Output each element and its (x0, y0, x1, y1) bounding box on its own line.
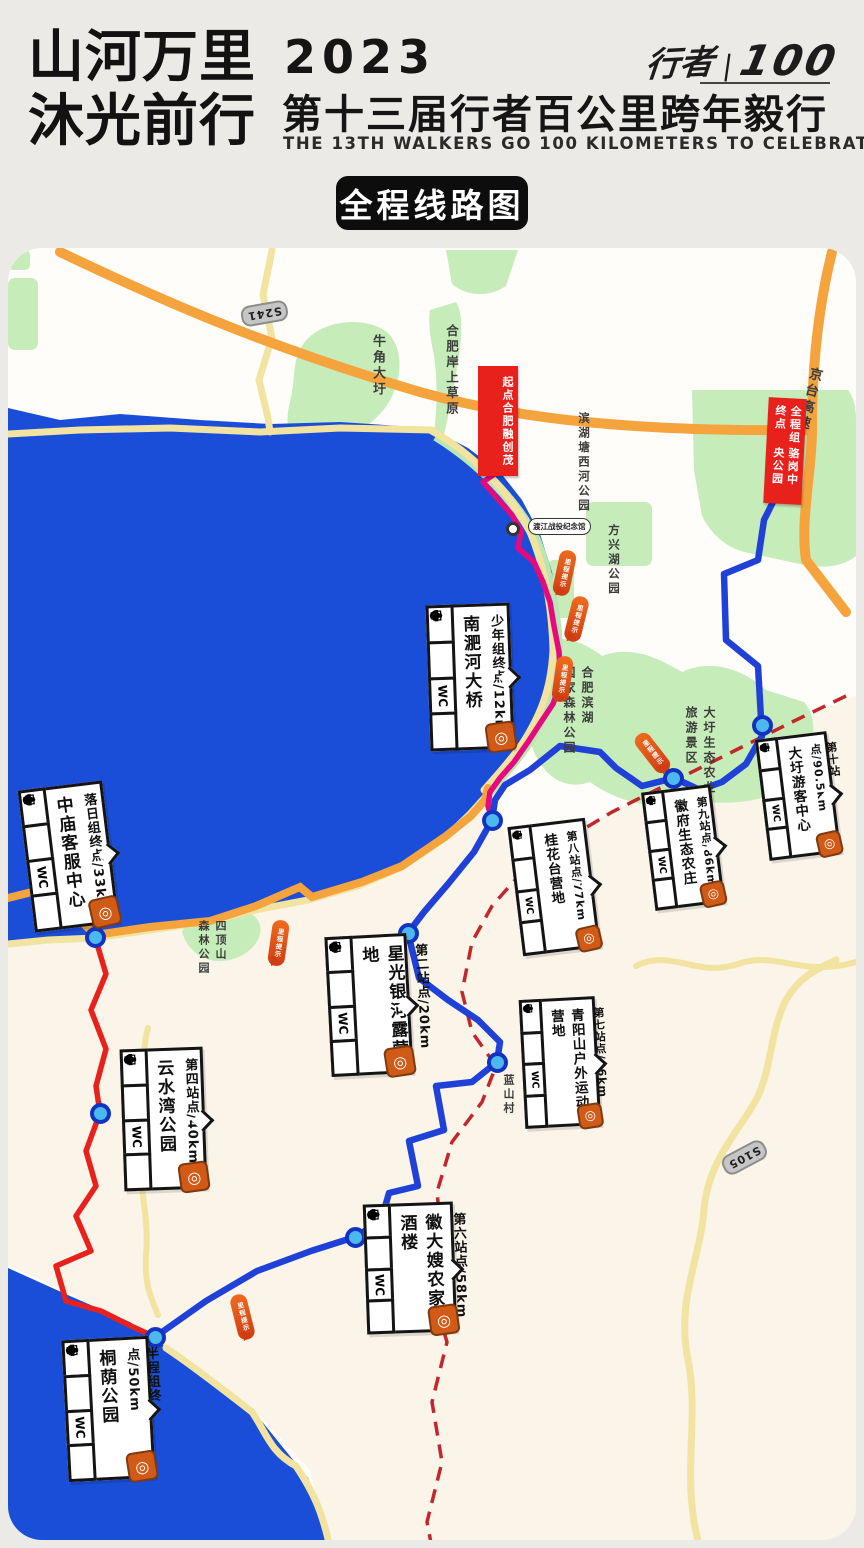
station-name: 南淝河大桥 (457, 615, 486, 740)
shuttle-bus-icon (366, 1299, 395, 1335)
event-year: 2023 (284, 30, 436, 84)
shuttle-bus-icon (67, 1443, 97, 1482)
event-subtitle: THE 13TH WALKERS GO 100 KILOMETERS TO CE… (283, 134, 864, 153)
logo-divider: | (721, 49, 735, 83)
shuttle-bus-icon (524, 1093, 549, 1129)
logo-text-left: 行者 (644, 34, 717, 86)
station-title: 少年组终点/12km (486, 614, 509, 739)
checkpoint-target-icon: ◎ (125, 1449, 159, 1483)
memorial-poi-dot (506, 522, 520, 536)
medical-cross-icon (326, 970, 356, 1009)
medical-cross-icon (63, 1374, 93, 1413)
label-niujiao-dawei: 牛角大圩 (368, 334, 387, 398)
route-node (487, 1052, 508, 1073)
checkpoint-target-icon: ◎ (383, 1044, 417, 1078)
station-callout-20km: WC 第二站点/20km 星光银河露营地 ◎ (324, 933, 413, 1077)
station-callout-90-5km: WC 第十站点/90.5km 大圩游客中心 ◎ (755, 731, 841, 861)
station-name: 云水湾公园 (151, 1059, 180, 1180)
checkpoint-target-icon: ◎ (177, 1160, 211, 1194)
medical-cross-icon (364, 1235, 393, 1271)
station-title: 第七站点/66km (590, 1007, 612, 1115)
medical-cross-icon (520, 1030, 545, 1066)
station-callout-86km: WC 第九站点/86km 徽府生态农庄 ◎ (641, 784, 725, 911)
toilet-wc-icon: WC (365, 1267, 394, 1303)
toilet-wc-icon: WC (122, 1118, 151, 1157)
label-dawei-eco-area: 大圩生态农业 旅游景区 (682, 706, 719, 796)
station-title: 第十站点/90.5km (806, 741, 850, 844)
route-node (663, 768, 684, 789)
toilet-wc-icon: WC (65, 1408, 95, 1447)
shuttle-bus-icon (330, 1038, 360, 1077)
toilet-wc-icon: WC (428, 676, 457, 716)
route-node (85, 927, 106, 948)
shuttle-bus-icon (429, 712, 458, 752)
station-callout-58km: WC 第六站点/58km 徽大嫂农家酒楼 ◎ (363, 1201, 457, 1334)
header: 山河万里 沐光前行 2023 第十三届行者百公里跨年毅行 THE 13TH WA… (0, 0, 864, 248)
slogan: 山河万里 沐光前行 (28, 26, 256, 154)
checkpoint-target-icon: ◎ (484, 720, 518, 754)
station-callout-12km: WC 少年组终点/12km 南淝河大桥 ◎ (425, 603, 514, 752)
station-name: 青阳山户外运动营地 (546, 1008, 592, 1117)
station-callout-77km: WC 第八站点/77km 桂花台营地 ◎ (507, 818, 600, 957)
label-tangxihe-park: 滨湖塘西河公园 (576, 412, 592, 514)
map-title-badge: 全程线路图 (336, 176, 528, 230)
label-anshang-caoyuan: 合肥岸上草原 (442, 324, 461, 417)
toilet-wc-icon: WC (522, 1062, 547, 1098)
slogan-line1: 山河万里 (28, 26, 256, 90)
logo-text-right: 100 (736, 36, 843, 85)
shuttle-bus-icon (30, 892, 62, 933)
finish-point-box: 全程组终点 骆岗中央公园 (763, 397, 806, 505)
start-point-box: 起点 合肥融创茂 (478, 366, 518, 476)
route-node (482, 810, 503, 831)
route-node (752, 715, 773, 736)
event-route-poster: { "header": { "slogan_line1": "山河万里", "s… (0, 0, 864, 1548)
route-map: S241 S105 牛角大圩 合肥岸上草原 滨湖塘西河公园 方兴湖公园 京台高速… (8, 248, 856, 1540)
station-callout-33km: WC 落日组终点/33km 中庙客服中心 ◎ (18, 780, 120, 932)
shuttle-bus-icon (123, 1153, 152, 1192)
medical-cross-icon (121, 1083, 150, 1122)
station-title: 第二站点/20km (410, 943, 435, 1062)
event-title: 第十三届行者百公里跨年毅行 (282, 82, 828, 140)
station-callout-50km: WC 半程组终点/50km 桐荫公园 ◎ (61, 1336, 155, 1482)
toilet-wc-icon: WC (328, 1004, 358, 1043)
checkpoint-target-icon: ◎ (576, 1102, 605, 1131)
logo-underline (700, 82, 830, 87)
memorial-poi-label: 渡江战役纪念馆 (528, 518, 591, 535)
label-fangxinghu-park: 方兴湖公园 (606, 524, 622, 597)
slogan-line2: 沐光前行 (28, 90, 256, 154)
label-lanshan-village: 蓝山村 (500, 1074, 516, 1116)
checkpoint-target-icon: ◎ (427, 1303, 461, 1337)
station-callout-40km: WC 第四站点/40km 云水湾公园 ◎ (120, 1047, 208, 1192)
label-sidingshan-park: 四顶山 森林公园 (194, 920, 229, 976)
route-node (90, 1103, 111, 1124)
medical-cross-icon (427, 640, 456, 680)
station-callout-66km: WC 第七站点/66km 青阳山户外运动营地 ◎ (519, 996, 602, 1129)
station-name: 桐荫公园 (93, 1348, 124, 1469)
walkers-100-logo: 行者 | 100 (646, 36, 838, 85)
